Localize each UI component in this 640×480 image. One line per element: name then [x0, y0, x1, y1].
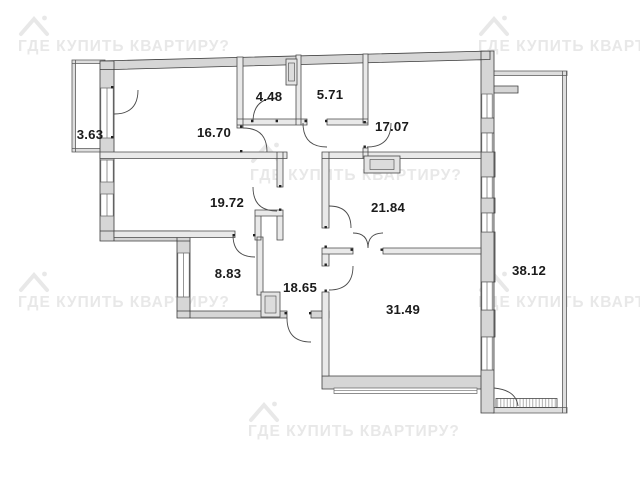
- wall-segment: [100, 54, 481, 376]
- double-door-arc: [353, 233, 383, 248]
- watermark-text: ГДЕ КУПИТЬ КВАРТИРУ?: [478, 294, 640, 311]
- room-area-label-top-left: 16.70: [197, 125, 231, 140]
- watermark-middle-right: ГДЕ КУПИТЬ КВАРТИРУ?: [478, 272, 640, 311]
- door-arc: [253, 187, 277, 211]
- room-area-label-bottom: 31.49: [386, 302, 420, 317]
- room-area-label-top-right: 17.07: [375, 119, 409, 134]
- terrace-ledge-hatched: [496, 399, 557, 408]
- entrance-door-arc: [287, 318, 311, 342]
- floor-plan-canvas: ГДЕ КУПИТЬ КВАРТИРУ? ГДЕ КУПИТЬ КВАРТИРУ…: [0, 0, 640, 480]
- door-arc: [329, 206, 351, 228]
- house-icon: [251, 402, 277, 420]
- room-area-label-balcony: 3.63: [77, 127, 103, 142]
- watermark-text: ГДЕ КУПИТЬ КВАРТИРУ?: [248, 423, 460, 440]
- room-area-label-small-1: 4.48: [256, 89, 282, 104]
- door-arc: [114, 90, 138, 114]
- watermark-text: ГДЕ КУПИТЬ КВАРТИРУ?: [18, 294, 230, 311]
- door-arc: [329, 266, 353, 290]
- floor-plan-page: ГДЕ КУПИТЬ КВАРТИРУ? ГДЕ КУПИТЬ КВАРТИРУ…: [0, 0, 640, 480]
- ventilation-shaft-inner: [370, 160, 394, 170]
- door-arc: [233, 235, 255, 257]
- room-area-label-terrace: 38.12: [512, 263, 546, 278]
- watermark-text: ГДЕ КУПИТЬ КВАРТИРУ?: [18, 38, 230, 55]
- door-arc: [303, 123, 327, 147]
- room-area-label-mid-right: 21.84: [371, 200, 405, 215]
- house-icon: [21, 272, 47, 290]
- ventilation-shaft-inner: [289, 63, 295, 81]
- ventilation-shaft-inner: [265, 296, 276, 313]
- watermark-middle-left: ГДЕ КУПИТЬ КВАРТИРУ?: [18, 272, 230, 311]
- room-area-label-small-2: 5.71: [317, 87, 343, 102]
- house-icon: [481, 16, 507, 34]
- room-area-label-mid-left: 19.72: [210, 195, 244, 210]
- room-labels: 3.63 16.70 4.48 5.71 17.07 19.72 21.84 8…: [77, 87, 546, 317]
- watermark-top-right: ГДЕ КУПИТЬ КВАРТИРУ?: [478, 16, 640, 55]
- house-icon: [21, 16, 47, 34]
- room-area-label-closet: 8.83: [215, 266, 241, 281]
- ventilation-shafts: [261, 59, 557, 408]
- room-area-label-hallway: 18.65: [283, 280, 317, 295]
- inner-walls: [100, 54, 481, 376]
- doors: [111, 86, 518, 406]
- watermark-text: ГДЕ КУПИТЬ КВАРТИРУ?: [478, 38, 640, 55]
- watermark-bottom-center: ГДЕ КУПИТЬ КВАРТИРУ?: [248, 402, 460, 440]
- watermark-top-left: ГДЕ КУПИТЬ КВАРТИРУ?: [18, 16, 230, 55]
